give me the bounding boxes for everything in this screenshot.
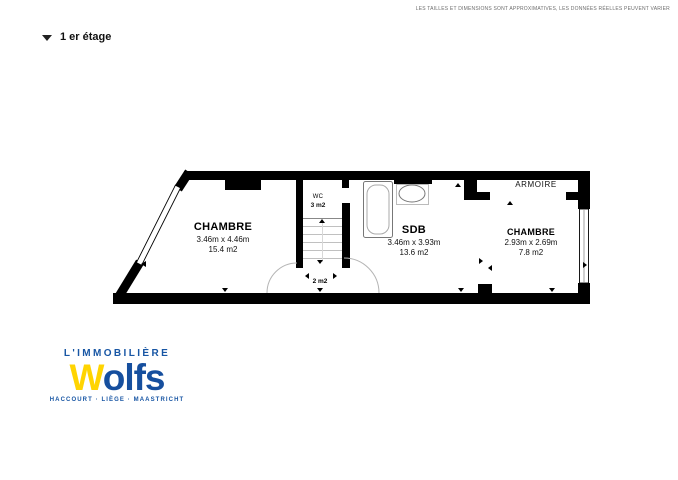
room-name: CHAMBRE	[505, 227, 558, 238]
room-label-wc: WC 3 m2	[311, 194, 326, 210]
room-name: WC	[311, 194, 326, 202]
room-area: 7.8 m2	[505, 248, 558, 258]
logo-brand-name: Wolfs	[48, 360, 186, 395]
room-dimensions: 3.46m x 4.46m	[194, 235, 252, 245]
logo-brand-initial: W	[69, 357, 102, 398]
window-right	[580, 209, 589, 283]
room-area: 3 m2	[311, 202, 326, 210]
room-area: 2 m2	[313, 278, 328, 285]
stair-up-arrow-icon	[319, 219, 325, 223]
logo-cities: HACCOURT · LIÈGE · MAASTRICHT	[48, 397, 186, 403]
room-dimensions: 3.46m x 3.93m	[388, 238, 441, 248]
room-name: ARMOIRE	[515, 180, 557, 189]
room-label-chambre2: CHAMBRE 2.93m x 2.69m 7.8 m2	[505, 227, 558, 258]
logo-brand-rest: olfs	[103, 357, 165, 398]
sink	[394, 171, 432, 205]
room-label-armoire: ARMOIRE	[515, 180, 557, 190]
agency-logo: L'IMMOBILIÈRE Wolfs HACCOURT · LIÈGE · M…	[48, 348, 186, 403]
room-area: 13.6 m2	[388, 248, 441, 258]
room-label-sdb: SDB 3.46m x 3.93m 13.6 m2	[388, 224, 441, 258]
floor-plan	[0, 0, 678, 480]
room-area: 15.4 m2	[194, 245, 252, 255]
door-arc	[267, 258, 379, 293]
room-label-hall: 2 m2	[313, 278, 328, 286]
room-label-chambre1: CHAMBRE 3.46m x 4.46m 15.4 m2	[194, 221, 252, 255]
window-diagonal	[136, 185, 180, 265]
room-dimensions: 2.93m x 2.69m	[505, 238, 558, 248]
staircase	[303, 219, 342, 265]
room-name: SDB	[388, 224, 441, 238]
room-name: CHAMBRE	[194, 221, 252, 235]
